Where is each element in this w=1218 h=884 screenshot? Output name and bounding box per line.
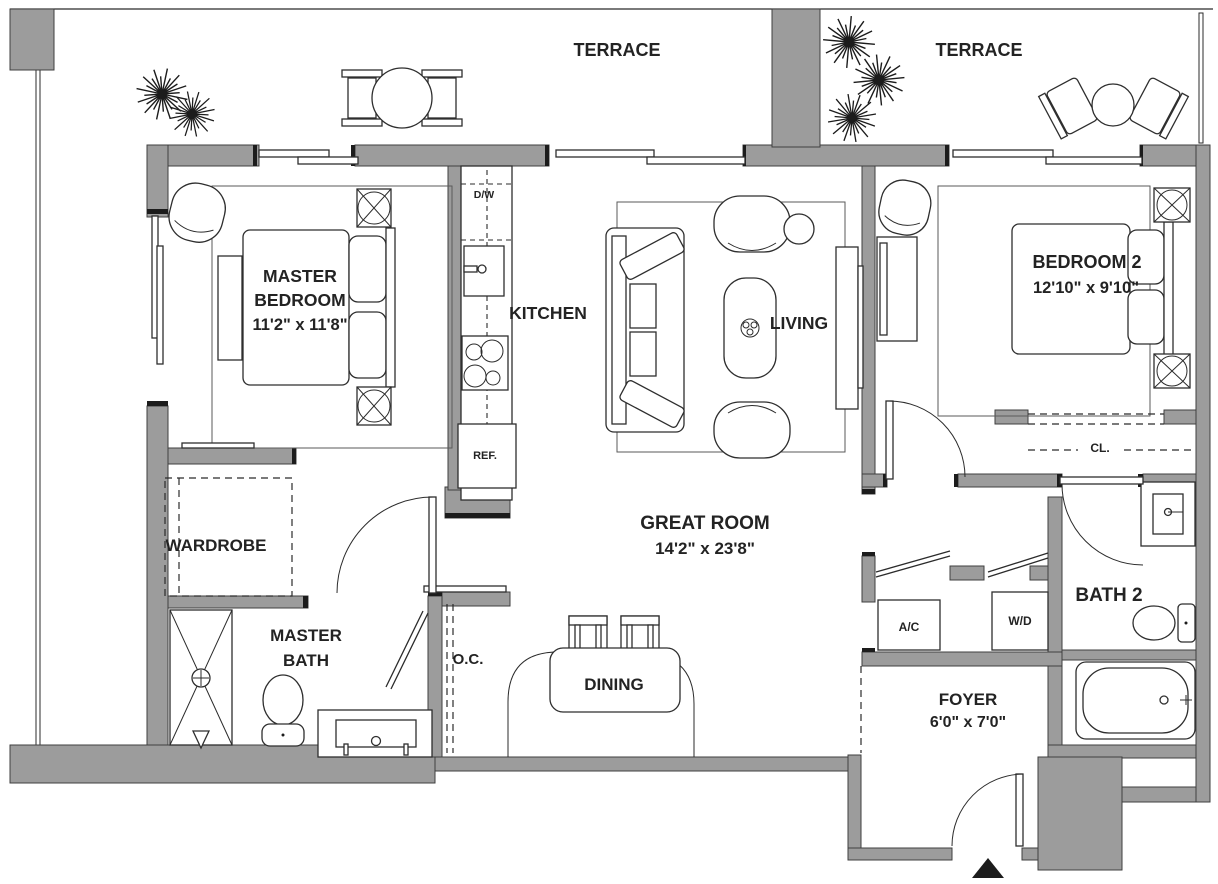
armchair-icon xyxy=(714,402,790,458)
headboard xyxy=(1164,222,1173,356)
coffee-table-icon xyxy=(724,278,776,378)
toilet-icon xyxy=(1133,604,1195,642)
label-bedroom2: BEDROOM 2 xyxy=(1032,252,1141,272)
label-terrace-right: TERRACE xyxy=(935,40,1022,60)
headboard xyxy=(386,228,395,387)
floor-plan: TERRACE TERRACE MASTER BEDROOM 11'2" x 1… xyxy=(0,0,1218,879)
label-master-bedroom-1: MASTER xyxy=(263,266,337,286)
label-bath2: BATH 2 xyxy=(1075,585,1142,606)
nightstand-icon xyxy=(1154,188,1190,222)
toilet-icon xyxy=(262,675,304,746)
dining-chair-icon xyxy=(621,616,659,652)
sink-icon xyxy=(464,246,504,296)
armchair-icon xyxy=(164,178,230,247)
shelf xyxy=(182,443,254,448)
nightstand-icon xyxy=(357,387,391,425)
bench-icon xyxy=(218,256,242,360)
bathtub-icon xyxy=(1076,662,1195,739)
label-terrace-left: TERRACE xyxy=(573,40,660,60)
sofa-icon xyxy=(606,228,685,432)
label-ac: A/C xyxy=(899,620,920,634)
label-living: LIVING xyxy=(770,313,828,333)
label-closet: CL. xyxy=(1090,441,1109,455)
vanity-sink-icon xyxy=(1141,482,1195,546)
label-bedroom2-dims: 12'10" x 9'10" xyxy=(1033,279,1139,297)
stove-icon xyxy=(462,336,508,390)
label-wd: W/D xyxy=(1008,614,1032,628)
label-dishwasher: D/W xyxy=(474,189,495,201)
side-table-icon xyxy=(784,214,814,244)
floor-plan-drawing: TERRACE TERRACE MASTER BEDROOM 11'2" x 1… xyxy=(0,0,1218,879)
terrace-chair-set-right xyxy=(1039,77,1189,139)
bath2-fixtures xyxy=(1076,482,1195,739)
round-table-icon xyxy=(1092,84,1134,126)
door-swing-icon xyxy=(886,401,965,479)
sliding-window-bedroom2 xyxy=(953,150,1142,164)
round-table-icon xyxy=(372,68,432,128)
closet-door-icon xyxy=(876,551,950,577)
door-swing-icon xyxy=(337,497,436,593)
master-bedroom-furniture xyxy=(164,178,452,448)
label-oc: O.C. xyxy=(453,651,484,668)
sliding-window-master-side xyxy=(152,216,163,364)
dresser-icon xyxy=(877,237,917,341)
pillow-icon xyxy=(1128,290,1164,344)
label-master-bedroom-dims: 11'2" x 11'8" xyxy=(252,316,347,334)
door-leaf-icon xyxy=(386,611,428,689)
label-master-bath-1: MASTER xyxy=(270,626,342,645)
tv-console-icon xyxy=(836,247,863,409)
label-foyer: FOYER xyxy=(939,690,998,709)
label-refrigerator: REF. xyxy=(473,450,497,462)
vanity-sink-icon xyxy=(318,710,432,757)
wardrobe-outline xyxy=(165,443,292,596)
palm-plant-icon-left xyxy=(131,63,225,147)
label-master-bedroom-2: BEDROOM xyxy=(254,290,345,310)
door-swing-icon xyxy=(1060,477,1143,565)
entry-arrow-icon xyxy=(972,858,1004,878)
nightstand-icon xyxy=(357,189,391,227)
nightstand-icon xyxy=(1154,354,1190,388)
column xyxy=(10,9,54,70)
pillow-icon xyxy=(349,312,386,378)
armchair-icon xyxy=(714,196,790,252)
sliding-window-master xyxy=(259,150,358,164)
palm-plant-icon-right xyxy=(817,14,913,153)
label-wardrobe: WARDROBE xyxy=(165,536,266,555)
sliding-window-living xyxy=(556,150,745,164)
pillow-icon xyxy=(349,236,386,302)
label-dining: DINING xyxy=(584,675,644,694)
label-foyer-dims: 6'0" x 7'0" xyxy=(930,714,1006,731)
label-great-room-dims: 14'2" x 23'8" xyxy=(655,539,755,558)
label-kitchen: KITCHEN xyxy=(509,303,587,323)
dining-chair-icon xyxy=(569,616,607,652)
label-master-bath-2: BATH xyxy=(283,651,329,670)
armchair-icon xyxy=(875,176,935,239)
label-great-room: GREAT ROOM xyxy=(640,513,769,534)
terrace-table-set-left xyxy=(342,68,462,128)
shower-icon xyxy=(170,610,232,748)
entry-door-swing-icon xyxy=(952,774,1023,846)
